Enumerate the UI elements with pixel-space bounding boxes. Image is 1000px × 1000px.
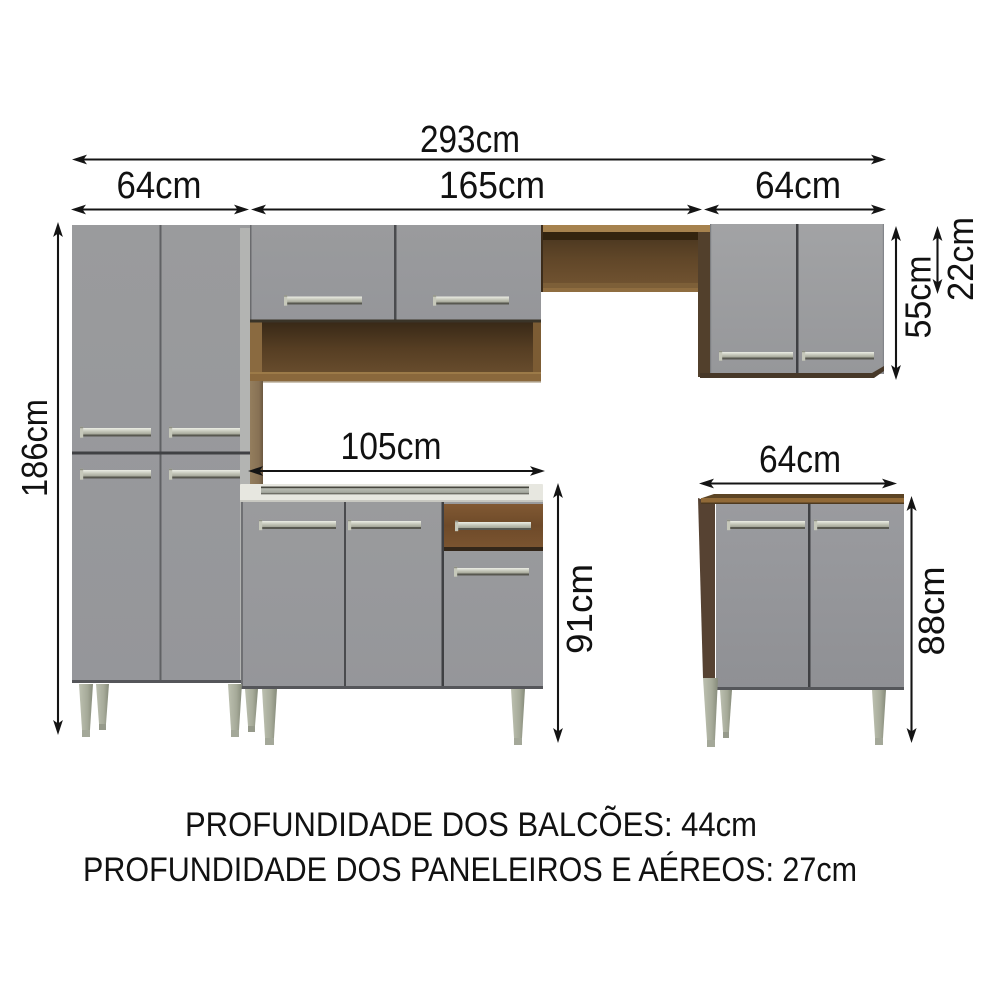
svg-text:64cm: 64cm <box>759 439 841 481</box>
svg-text:105cm: 105cm <box>341 426 442 468</box>
svg-text:22cm: 22cm <box>940 217 981 301</box>
svg-text:55cm: 55cm <box>898 256 939 339</box>
svg-text:PROFUNDIDADE DOS PANELEIROS E: PROFUNDIDADE DOS PANELEIROS E AÉREOS: 27… <box>83 851 857 889</box>
svg-text:64cm: 64cm <box>755 165 841 207</box>
svg-text:88cm: 88cm <box>911 567 952 656</box>
svg-text:165cm: 165cm <box>439 165 545 207</box>
svg-text:91cm: 91cm <box>559 564 600 654</box>
svg-text:293cm: 293cm <box>420 119 520 161</box>
svg-text:PROFUNDIDADE DOS BALCÕES: 44cm: PROFUNDIDADE DOS BALCÕES: 44cm <box>185 806 757 844</box>
svg-text:186cm: 186cm <box>14 399 55 497</box>
svg-text:64cm: 64cm <box>117 165 202 207</box>
